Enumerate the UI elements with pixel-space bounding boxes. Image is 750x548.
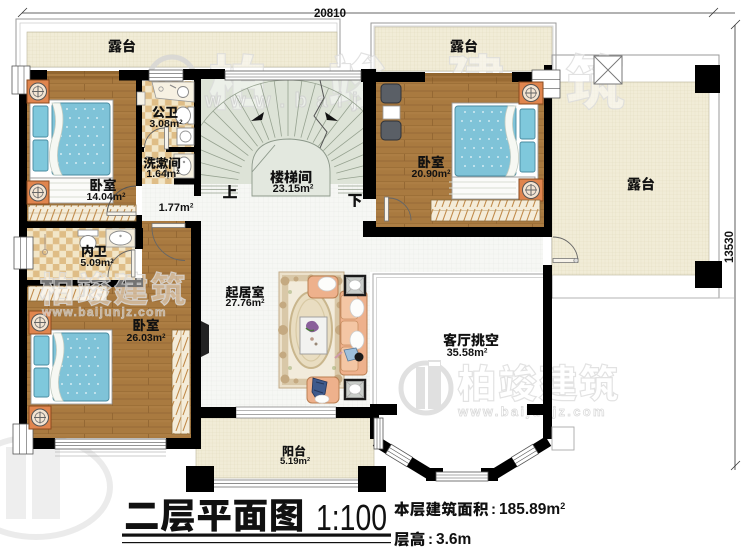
- svg-text:23.15m2: 23.15m2: [273, 183, 314, 195]
- svg-text:185.89m2: 185.89m2: [499, 501, 565, 518]
- svg-text:www.baijunjz.com: www.baijunjz.com: [41, 305, 170, 319]
- svg-text:3.08m2: 3.08m2: [149, 118, 183, 130]
- svg-text:5.19m2: 5.19m2: [280, 456, 310, 467]
- svg-text:1.64m2: 1.64m2: [146, 168, 180, 180]
- svg-text:1.77m2: 1.77m2: [159, 202, 194, 214]
- svg-text:3.6m: 3.6m: [436, 531, 471, 548]
- svg-text:5.09m2: 5.09m2: [80, 257, 114, 269]
- svg-text::: :: [491, 501, 496, 518]
- svg-text:14.04m2: 14.04m2: [86, 191, 126, 203]
- svg-text::: :: [428, 531, 433, 548]
- svg-text:13530: 13530: [724, 231, 736, 263]
- svg-text:1:100: 1:100: [316, 497, 387, 538]
- svg-text:27.76m2: 27.76m2: [225, 297, 265, 309]
- svg-text:35.58m2: 35.58m2: [447, 347, 488, 359]
- svg-text:20810: 20810: [314, 8, 346, 20]
- svg-text:26.03m2: 26.03m2: [126, 332, 166, 344]
- svg-text:20.90m2: 20.90m2: [411, 168, 451, 180]
